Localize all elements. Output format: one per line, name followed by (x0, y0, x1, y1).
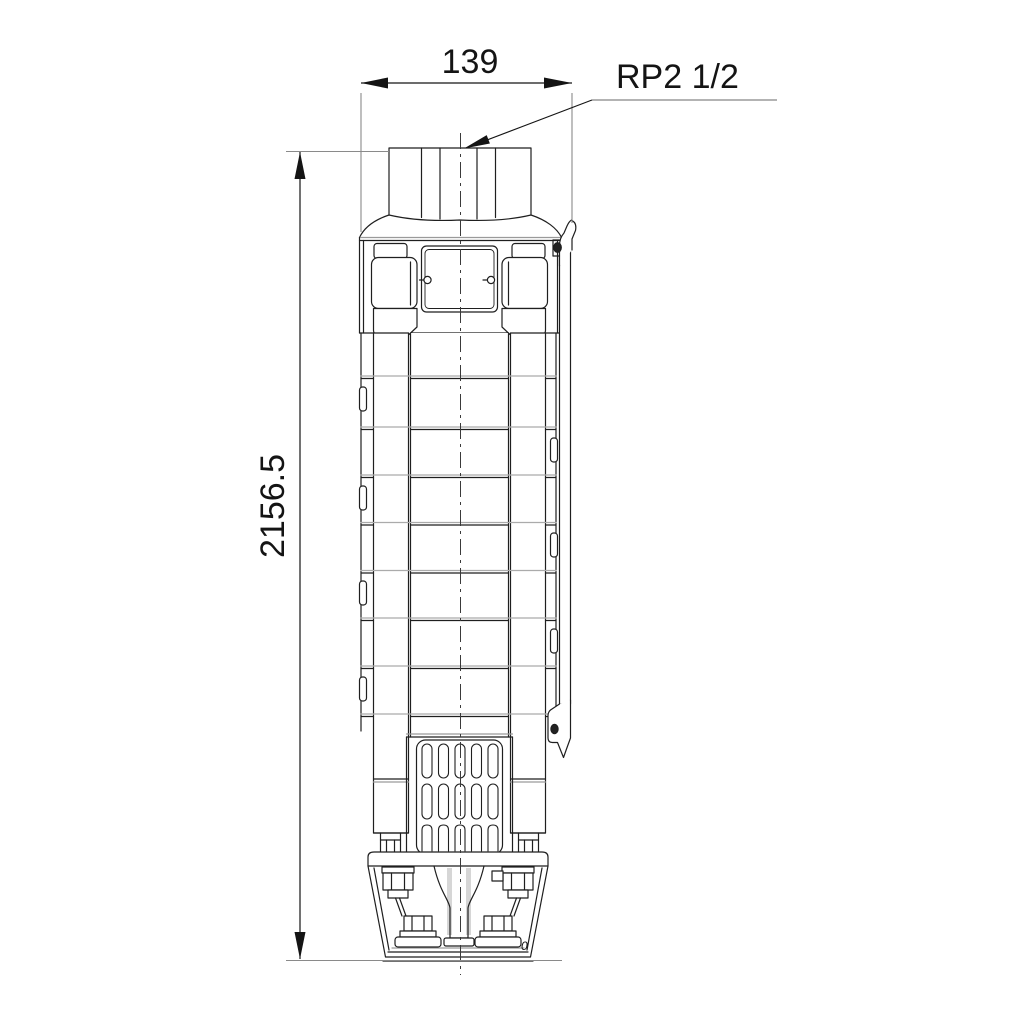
strap-clamp-left (372, 244, 418, 335)
connection-label: RP2 1/2 (616, 58, 739, 96)
drawing-page: 139 2156.5 RP2 1/2 0 (0, 0, 1024, 1024)
strap-bottom-left (374, 833, 409, 852)
arrow-left-icon (361, 78, 388, 89)
arrow-right-icon (544, 78, 572, 89)
width-dimension-label: 139 (442, 43, 499, 81)
strap-bottom-right (511, 833, 546, 852)
arrow-up-icon (295, 152, 306, 179)
leader-arrow-icon (464, 135, 490, 148)
strap-left (374, 333, 409, 833)
cable-guard-bottom-bolt (551, 724, 558, 733)
cable-guard-top-bolt (554, 243, 562, 253)
bracket-bolt-tab (492, 871, 503, 881)
cable-guard (548, 220, 576, 758)
arrow-down-icon (295, 932, 306, 959)
pump-dimensional-drawing: 139 2156.5 RP2 1/2 0 (0, 0, 1024, 1024)
strap-clamp-right (502, 244, 548, 335)
detail-mark-label: 0 (521, 939, 528, 953)
strap-right (511, 333, 546, 833)
nameplate (420, 246, 498, 312)
inlet-strainer (407, 734, 513, 854)
height-dimension-label: 2156.5 (254, 454, 292, 558)
connection-leader: RP2 1/2 (464, 58, 777, 149)
